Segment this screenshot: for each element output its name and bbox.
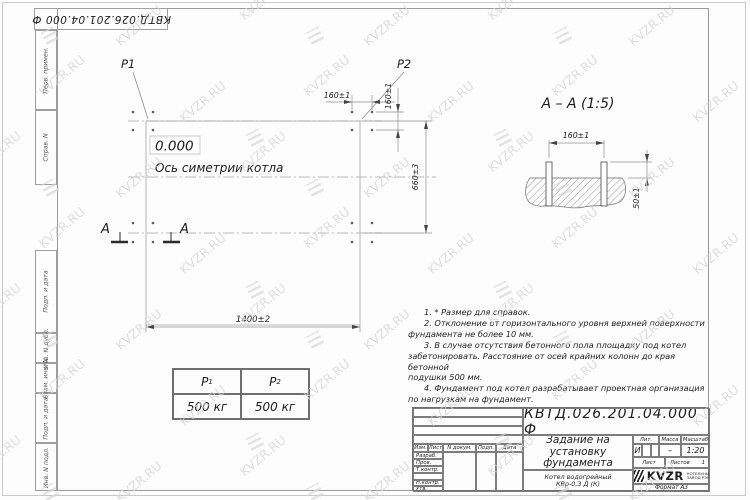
note-line: 2. Отклонение от горизонтального уровня …	[408, 318, 706, 329]
load-table-header-p2: P2	[241, 369, 309, 394]
company-logo-cell: KVZR КОТЕЛЬНЫЙ ЗАВОД РЭУ	[633, 468, 710, 484]
change-row	[413, 417, 523, 426]
col-header-data: Дата	[496, 444, 523, 452]
p2-label: P2	[397, 57, 411, 71]
lit-cell-3	[651, 444, 659, 457]
note-line: 4. Фундамент под котел разрабатывает про…	[408, 383, 706, 394]
kvzr-logo-icon	[633, 470, 644, 482]
row-tkontr: Т.контр.	[413, 466, 443, 473]
change-row	[413, 435, 523, 444]
anchor-bolt-left	[546, 162, 552, 206]
axis-label: Ось симетрии котла	[155, 161, 283, 175]
plan-view: P1 P2 0.000 Ось симетрии котла 160±1 160…	[100, 57, 436, 332]
section-title: А – А (1:5)	[541, 96, 615, 112]
section-view: А – А (1:5) 160±1 50±1	[526, 96, 652, 209]
scale-value: 1:20	[681, 444, 710, 457]
row-prov: Пров.	[413, 459, 443, 466]
note-line: подушки 500 мм.	[408, 372, 706, 383]
dim-bolt-top-label: 160±1	[324, 91, 350, 100]
logo-name: KVZR	[647, 469, 684, 483]
dim-height-label: 660±3	[411, 164, 420, 190]
note-line: 1. * Размер для справок.	[408, 307, 706, 318]
note-line: забетонировать. Расстояние от осей крайн…	[408, 351, 706, 373]
lit-cell-2	[642, 444, 651, 457]
col-header-podp: Подп.	[476, 444, 496, 452]
product-cell: Котел водогрейный КВр-0,3 Д (К)	[523, 470, 633, 492]
drawing-sheet: Перв. примен. Справ. N Подп. и дата Инв.…	[0, 0, 750, 500]
load-table-header-p1: P1	[173, 369, 241, 394]
change-row	[413, 408, 523, 417]
mass-value: –	[659, 444, 681, 457]
row-razrab: Разраб.	[413, 452, 443, 459]
technical-notes: 1. * Размер для справок. 2. Отклонение о…	[408, 307, 706, 405]
concrete-pad	[526, 178, 626, 208]
section-cut-marks: A A	[100, 222, 189, 242]
sig-col	[476, 452, 496, 492]
lit-header: Лит.	[633, 435, 659, 444]
sig-col	[443, 452, 476, 492]
load-table-value-p1: 500 кг	[173, 394, 241, 419]
note-line: по нагрузкам на фундамент.	[408, 394, 706, 405]
load-table: P1 P2 500 кг 500 кг	[172, 368, 310, 420]
dim-bolt-side-label: 160±1	[384, 83, 393, 109]
sheets-value: 1	[702, 460, 705, 466]
col-header-list: Лист	[428, 444, 443, 452]
section-letter-left: A	[100, 222, 110, 237]
section-dim-protrusion-label: 50±1	[632, 187, 641, 208]
anchor-bolt-right	[601, 162, 607, 206]
sheet-cell: Лист	[633, 457, 665, 468]
mass-header: Масса	[659, 435, 681, 444]
format-cell: Формат А3	[633, 484, 710, 492]
p1-label: P1	[121, 57, 135, 71]
section-letter-right: A	[179, 222, 189, 237]
company-logo: KVZR КОТЕЛЬНЫЙ ЗАВОД РЭУ	[633, 469, 710, 483]
title-block: Изм. Лист N докум. Подп. Дата Разраб. Пр…	[412, 407, 709, 491]
note-line: 3. В случае отсутствия бетонного пола пл…	[408, 340, 706, 351]
section-dim-spacing-label: 160±1	[563, 131, 589, 140]
logo-subtitle: КОТЕЛЬНЫЙ ЗАВОД РЭУ	[687, 472, 710, 481]
lit-value: И	[633, 444, 642, 457]
note-line: фундамента не более 10 мм.	[408, 329, 706, 340]
dim-width-label: 1400±2	[236, 315, 270, 325]
doc-title-cell: Задание на установку фундамента	[523, 435, 633, 470]
sig-col	[496, 452, 523, 492]
load-table-value-p2: 500 кг	[241, 394, 309, 419]
row-blank	[413, 473, 443, 480]
col-header-ndoc: N докум.	[443, 444, 476, 452]
row-utv: Утв.	[413, 486, 443, 492]
scale-header: Масштаб	[681, 435, 710, 444]
designation-cell: КВТД.026.201.04.000 Ф	[523, 408, 710, 435]
sheets-cell: Листов 1	[665, 457, 710, 468]
p1-leader-line	[133, 72, 148, 119]
level-mark: 0.000	[155, 139, 194, 155]
col-header-izm: Изм.	[413, 444, 428, 452]
change-row	[413, 426, 523, 435]
